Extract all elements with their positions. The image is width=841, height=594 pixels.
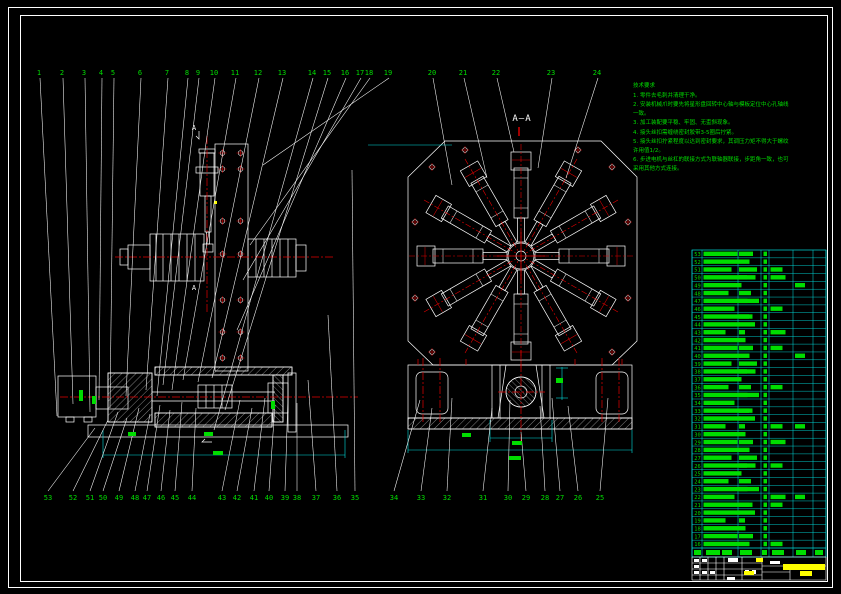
- leader-line: [157, 78, 188, 396]
- callout-number: 35: [351, 494, 359, 502]
- bom-qty-text: [764, 338, 768, 342]
- bom-note-text: [795, 495, 805, 499]
- callout-number: 44: [188, 494, 196, 502]
- bom-material-text: [771, 275, 786, 279]
- bom-name-text: [704, 354, 750, 358]
- bom-material-text: [771, 440, 786, 444]
- bom-spec-text: [739, 510, 755, 514]
- bom-name-text: [704, 518, 726, 522]
- leader-line: [433, 78, 452, 185]
- bom-item-number: 23: [694, 487, 701, 493]
- unit-redmark: [433, 296, 442, 312]
- bom-qty-text: [764, 393, 768, 397]
- callout-number: 15: [323, 69, 331, 77]
- callout-number: 20: [428, 69, 436, 77]
- bom-material-text: [771, 495, 786, 499]
- title-block-text: [702, 571, 707, 574]
- bom-spec-text: [739, 369, 747, 373]
- callout-number: 52: [69, 494, 77, 502]
- callout-number: 17: [356, 69, 364, 77]
- bom-qty-text: [764, 542, 768, 546]
- bom-header-text: [796, 550, 806, 555]
- bom-material-text: [771, 346, 783, 350]
- bom-item-number: 51: [694, 268, 701, 274]
- leader-line: [243, 78, 361, 280]
- bom-item-number: 50: [694, 276, 701, 282]
- bom-qty-text: [764, 252, 768, 256]
- title-block-text: [702, 559, 707, 562]
- bom-qty-text: [764, 299, 768, 303]
- title-block-text: [694, 565, 699, 568]
- bom-item-number: 32: [694, 417, 701, 423]
- callout-number: 18: [365, 69, 373, 77]
- bom-spec-text: [739, 361, 757, 365]
- bom-item-number: 24: [694, 479, 701, 485]
- bom-item-number: 28: [694, 448, 701, 454]
- bom-item-number: 53: [694, 252, 701, 258]
- stepper-motor: [58, 376, 96, 417]
- callout-number: 49: [115, 494, 123, 502]
- bom-item-number: 30: [694, 432, 701, 438]
- bom-item-number: 41: [694, 346, 701, 352]
- bom-item-number: 40: [694, 354, 701, 360]
- callout-number: 46: [157, 494, 165, 502]
- callout-number: 40: [265, 494, 273, 502]
- leader-line: [103, 418, 127, 491]
- clamp-cylinder-unit: [515, 154, 585, 256]
- bom-name-text: [704, 455, 732, 459]
- bom-qty-text: [764, 448, 768, 452]
- leader-line: [99, 78, 102, 400]
- bom-item-number: 42: [694, 338, 701, 344]
- callout-number: 11: [231, 69, 239, 77]
- bom-name-text: [704, 259, 750, 263]
- drawing-title-text: [800, 571, 812, 576]
- bom-spec-text: [739, 275, 747, 279]
- callout-number: 53: [44, 494, 52, 502]
- bom-qty-text: [764, 354, 768, 358]
- bom-qty-text: [764, 518, 768, 522]
- bom-note-text: [795, 424, 805, 428]
- leader-line: [263, 78, 389, 165]
- bom-name-text: [704, 330, 726, 334]
- technical-note-line: 3. 加工装配要平稳、牢固、无歪斜现象。: [633, 119, 789, 128]
- bom-material-text: [771, 542, 783, 546]
- dimension-text: [556, 378, 563, 383]
- bom-name-text: [704, 463, 756, 467]
- clamp-cylinder-unit: [456, 154, 526, 256]
- bom-spec-text: [739, 346, 753, 350]
- clamp-cylinder-unit: [456, 256, 526, 358]
- bom-qty-text: [764, 401, 768, 405]
- callout-number: 12: [254, 69, 262, 77]
- bom-name-text: [704, 283, 742, 287]
- dimension-text: [271, 401, 275, 409]
- bom-qty-text: [764, 440, 768, 444]
- leader-line: [225, 78, 328, 410]
- bom-header-text: [694, 550, 701, 555]
- bom-item-number: 18: [694, 527, 701, 533]
- bom-header-text: [772, 550, 784, 555]
- bom-qty-text: [764, 369, 768, 373]
- bom-item-number: 16: [694, 542, 701, 548]
- callout-number: 13: [278, 69, 286, 77]
- leader-line: [508, 400, 510, 491]
- unit-redmark: [465, 335, 481, 344]
- leader-line: [85, 78, 90, 412]
- bom-item-number: 38: [694, 370, 701, 376]
- bom-spec-text: [739, 330, 745, 334]
- technical-note-line: 6. 步进电机与丝杠的联接方式为联轴器联接，步距角一致，也可采用其他方式连接。: [633, 156, 789, 173]
- radial-clamp-cylinders: [409, 144, 633, 368]
- unit-redmark: [600, 200, 609, 216]
- bom-spec-text: [739, 455, 757, 459]
- callout-number: 3: [82, 69, 86, 77]
- bom-name-text: [704, 338, 746, 342]
- bom-qty-text: [764, 291, 768, 295]
- callout-number: 1: [37, 69, 41, 77]
- leader-line: [285, 396, 288, 491]
- bearing-housing-left: [108, 373, 152, 422]
- bom-item-number: 29: [694, 440, 701, 446]
- bom-qty-text: [764, 416, 768, 420]
- bom-qty-text: [764, 510, 768, 514]
- bom-qty-text: [764, 526, 768, 530]
- bom-qty-text: [764, 259, 768, 263]
- bom-qty-text: [764, 503, 768, 507]
- bom-spec-text: [739, 408, 749, 412]
- bom-item-number: 25: [694, 472, 701, 478]
- callout-number: 5: [111, 69, 115, 77]
- callout-number: 23: [547, 69, 555, 77]
- bom-name-text: [704, 322, 740, 326]
- technical-notes: 技术要求 1. 零件去毛刺并清理干净。2. 安装机械爪时要先将星形盘回转中心轴与…: [633, 82, 789, 174]
- bom-qty-text: [764, 385, 768, 389]
- bom-item-number: 46: [694, 307, 701, 313]
- dimension-lines: [103, 145, 632, 458]
- drawing-title-text: [756, 558, 763, 562]
- callout-number: 50: [99, 494, 107, 502]
- octagonal-plate: [408, 141, 637, 365]
- callout-number: 22: [492, 69, 500, 77]
- bom-spec-text: [739, 487, 759, 491]
- bom-qty-text: [764, 495, 768, 499]
- bom-qty-text: [764, 330, 768, 334]
- bom-name-text: [704, 346, 738, 350]
- unit-redmark: [561, 335, 577, 344]
- leader-line: [110, 78, 114, 408]
- drawing-title-text: [783, 564, 825, 570]
- technical-note-line: 2. 安装机械爪时要先将星形盘回转中心轴与模板定位中心孔轴线一致。: [633, 101, 789, 118]
- bom-material-text: [771, 330, 786, 334]
- bom-item-number: 37: [694, 378, 701, 384]
- bom-qty-text: [764, 471, 768, 475]
- bom-qty-text: [764, 346, 768, 350]
- bom-spec-text: [739, 252, 753, 256]
- title-block: [692, 557, 826, 580]
- leader-line: [212, 78, 283, 378]
- title-block-text: [727, 577, 735, 580]
- leader-line: [552, 398, 560, 491]
- callout-number: 33: [417, 494, 425, 502]
- bom-item-number: 22: [694, 495, 701, 501]
- callout-number: 8: [185, 69, 189, 77]
- bom-name-text: [704, 401, 735, 405]
- bom-spec-text: [739, 385, 751, 389]
- bom-name-text: [704, 267, 732, 271]
- bom-qty-text: [764, 432, 768, 436]
- bom-spec-text: [739, 440, 753, 444]
- dimension-text: [128, 432, 136, 436]
- callout-number: 37: [312, 494, 320, 502]
- bom-spec-text: [739, 291, 751, 295]
- bom-qty-text: [764, 463, 768, 467]
- bom-note-text: [795, 283, 805, 287]
- bom-name-text: [704, 275, 756, 279]
- callout-number: 10: [210, 69, 218, 77]
- bom-qty-text: [764, 275, 768, 279]
- unit-redmark: [600, 296, 609, 312]
- bom-header-text: [722, 550, 732, 555]
- section-view: [408, 141, 637, 429]
- leader-line: [135, 414, 150, 491]
- bom-name-text: [704, 377, 742, 381]
- callout-number: 2: [60, 69, 64, 77]
- bom-spec-text: [739, 416, 755, 420]
- callout-number: 24: [593, 69, 601, 77]
- bom-item-number: 31: [694, 425, 701, 431]
- bom-name-text: [704, 510, 740, 514]
- callout-number: 16: [341, 69, 349, 77]
- drawing-title-text: [744, 571, 754, 575]
- bom-name-text: [704, 448, 750, 452]
- bom-item-number: 26: [694, 464, 701, 470]
- bom-header-text: [815, 550, 823, 555]
- bom-name-text: [704, 385, 729, 389]
- bom-item-number: 43: [694, 330, 701, 336]
- callout-number: 19: [384, 69, 392, 77]
- clamp-cylinder-unit: [419, 250, 521, 320]
- leader-line: [214, 78, 313, 430]
- bom-item-number: 19: [694, 519, 701, 525]
- bom-item-number: 49: [694, 283, 701, 289]
- bom-note-text: [795, 354, 805, 358]
- bom-qty-text: [764, 534, 768, 538]
- bom-spec-text: [739, 479, 751, 483]
- bom-material-text: [771, 424, 783, 428]
- callout-number: 9: [196, 69, 200, 77]
- bom-name-text: [704, 361, 732, 365]
- title-block-text: [770, 561, 780, 564]
- bom-qty-text: [764, 283, 768, 287]
- bom-spec-text: [739, 322, 755, 326]
- callout-number: 36: [333, 494, 341, 502]
- bom-qty-text: [764, 424, 768, 428]
- bom-spec-text: [739, 518, 745, 522]
- bom-item-number: 34: [694, 401, 701, 407]
- bom-header-text: [762, 550, 767, 555]
- unit-redmark: [561, 168, 577, 177]
- title-block-text: [694, 571, 699, 574]
- callout-number: 27: [556, 494, 564, 502]
- callout-number: 26: [574, 494, 582, 502]
- dimension-text: [509, 456, 521, 460]
- bom-qty-text: [764, 487, 768, 491]
- technical-note-line: 5. 接头丝扣拧紧程度以达到密封要求，其调压力矩不得大于螺纹许用值1/2。: [633, 138, 789, 155]
- bom-name-text: [704, 526, 746, 530]
- leader-line: [521, 432, 526, 491]
- section-label: A—A: [492, 114, 552, 124]
- bom-spec-text: [739, 463, 747, 467]
- bom-name-text: [704, 440, 738, 444]
- bom-spec-text: [739, 314, 749, 318]
- bom-name-text: [704, 495, 735, 499]
- callout-number: 48: [131, 494, 139, 502]
- section-cut-mark: A: [192, 284, 197, 292]
- section-cut-mark: A: [192, 124, 197, 132]
- leader-line: [352, 170, 355, 491]
- bom-item-number: 48: [694, 291, 701, 297]
- callout-number: 38: [293, 494, 301, 502]
- clamp-cylinder-unit: [515, 256, 585, 358]
- title-block-text: [728, 558, 738, 562]
- callout-number: 21: [459, 69, 467, 77]
- bom-name-text: [704, 424, 726, 428]
- dimension-text: [92, 396, 96, 404]
- bom-table: 5352515049484746454443424140393837363534…: [692, 250, 826, 557]
- bom-spec-text: [739, 424, 745, 428]
- callout-number: 42: [233, 494, 241, 502]
- clamp-cylinder-unit: [521, 191, 623, 261]
- bom-item-number: 39: [694, 362, 701, 368]
- clamp-cylinder-unit: [419, 191, 521, 261]
- bom-material-text: [771, 267, 783, 271]
- callout-number: 51: [86, 494, 94, 502]
- bom-item-number: 35: [694, 393, 701, 399]
- callout-number: 4: [99, 69, 103, 77]
- callout-number: 47: [143, 494, 151, 502]
- bom-name-text: [704, 479, 729, 483]
- bom-spec-text: [739, 267, 757, 271]
- bom-spec-text: [739, 534, 753, 538]
- bom-qty-text: [764, 377, 768, 381]
- bom-header-text: [706, 550, 720, 555]
- technical-note-line: 1. 零件去毛刺并清理干净。: [633, 92, 789, 101]
- callout-number: 34: [390, 494, 398, 502]
- title-block-text: [694, 559, 699, 562]
- unit-redmark: [433, 200, 442, 216]
- bom-name-text: [704, 534, 738, 538]
- bom-item-number: 45: [694, 315, 701, 321]
- section-marks: AA: [192, 124, 197, 292]
- leader-line: [63, 78, 73, 404]
- callout-number: 32: [443, 494, 451, 502]
- bom-spec-text: [739, 393, 759, 397]
- dimension-text: [462, 433, 471, 437]
- bom-qty-text: [764, 306, 768, 310]
- bom-name-text: [704, 542, 750, 546]
- bom-name-text: [704, 291, 729, 295]
- leader-line: [254, 398, 265, 491]
- leader-line: [566, 78, 598, 178]
- bom-item-number: 27: [694, 456, 701, 462]
- bom-material-text: [771, 306, 783, 310]
- callout-number: 14: [308, 69, 316, 77]
- bom-spec-text: [739, 503, 749, 507]
- leader-line: [48, 428, 95, 491]
- bom-qty-text: [764, 361, 768, 365]
- callout-number: 25: [596, 494, 604, 502]
- leader-line: [447, 398, 452, 491]
- technical-notes-title: 技术要求: [633, 82, 789, 91]
- front-view: [58, 131, 348, 442]
- callout-number: 31: [479, 494, 487, 502]
- bom-item-number: 17: [694, 534, 701, 540]
- bom-name-text: [704, 306, 735, 310]
- title-block-text: [710, 571, 715, 574]
- callout-number: 29: [522, 494, 530, 502]
- bom-item-number: 21: [694, 503, 701, 509]
- callout-number: 7: [165, 69, 169, 77]
- bom-qty-text: [764, 314, 768, 318]
- bom-item-number: 47: [694, 299, 701, 305]
- callout-number: 39: [281, 494, 289, 502]
- dimension-text: [79, 390, 83, 401]
- bom-item-number: 20: [694, 511, 701, 517]
- bom-header-text: [740, 550, 752, 555]
- bom-item-number: 33: [694, 409, 701, 415]
- callout-number: 41: [250, 494, 258, 502]
- dimension-text: [213, 451, 223, 455]
- drawing-sheet: 1234567891011121314151617181920212223245…: [0, 0, 841, 594]
- bom-qty-text: [764, 408, 768, 412]
- callout-number: 43: [218, 494, 226, 502]
- bom-name-text: [704, 416, 740, 420]
- bom-item-number: 52: [694, 260, 701, 266]
- bom-spec-text: [739, 299, 759, 303]
- bom-item-number: 44: [694, 323, 701, 329]
- mounting-plate: [215, 144, 248, 371]
- dimension-text: [204, 432, 213, 436]
- clamp-cylinder-unit: [521, 250, 623, 320]
- callout-number: 28: [541, 494, 549, 502]
- bom-name-text: [704, 252, 738, 256]
- leader-line: [600, 398, 608, 491]
- bom-name-text: [704, 369, 756, 373]
- dimension-text: [512, 441, 522, 445]
- leader-line: [90, 412, 118, 491]
- bom-name-text: [704, 432, 746, 436]
- callout-number: 6: [138, 69, 142, 77]
- leader-line: [126, 78, 141, 396]
- front-view-centerlines: [60, 136, 358, 397]
- unit-redmark: [465, 168, 481, 177]
- bom-qty-text: [764, 455, 768, 459]
- bom-material-text: [771, 385, 783, 389]
- leader-line: [328, 315, 337, 491]
- leader-line: [40, 78, 57, 416]
- bom-name-text: [704, 471, 742, 475]
- callout-number: 45: [171, 494, 179, 502]
- bom-material-text: [771, 463, 783, 467]
- callout-number: 30: [504, 494, 512, 502]
- leader-line: [394, 400, 420, 491]
- technical-note-line: 4. 接头丝扣需缠绕密封胶带3-5圈后拧紧。: [633, 129, 789, 138]
- bom-qty-text: [764, 267, 768, 271]
- bom-qty-text: [764, 322, 768, 326]
- bom-qty-text: [764, 479, 768, 483]
- bom-material-text: [771, 503, 783, 507]
